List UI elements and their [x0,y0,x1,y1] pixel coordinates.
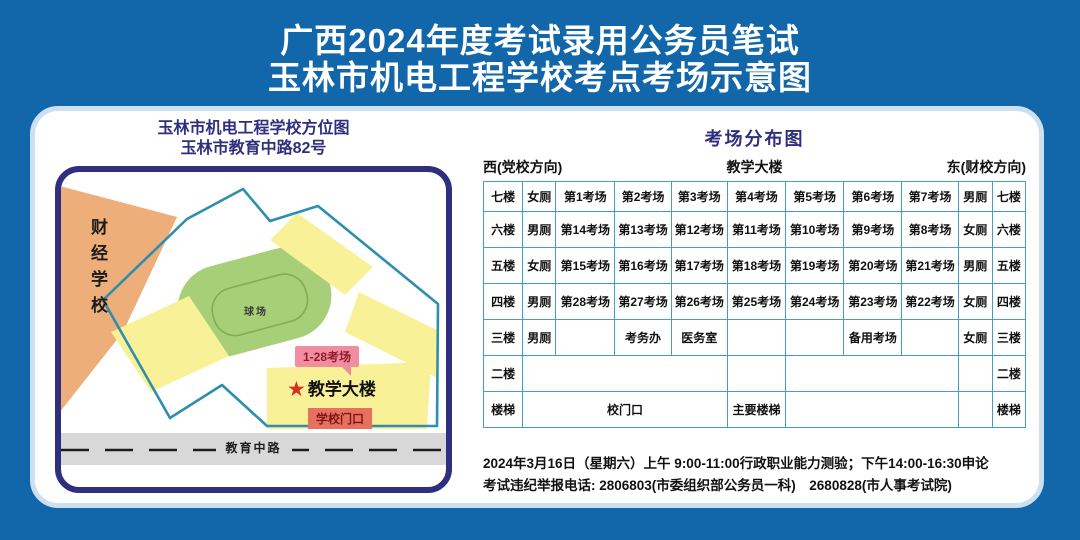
empty-cell [523,356,728,392]
room-cell: 五楼 [992,248,1025,284]
room-cell: 四楼 [992,284,1025,320]
room-cell: 女厕 [523,182,556,212]
room-cell: 男厕 [523,212,556,248]
room-cell: 第21考场 [902,248,958,284]
room-cell: 医务室 [671,320,727,356]
room-cell: 七楼 [992,182,1025,212]
room-cell: 楼梯 [484,392,523,428]
room-cell: 五楼 [484,248,523,284]
room-cell: 第5考场 [786,182,844,212]
teaching-building-text: 教学大楼 [308,380,376,399]
room-cell: 第6考场 [844,182,902,212]
room-cell: 备用考场 [844,320,902,356]
finance-school-label: 财经学校 [85,218,110,322]
content-panel: 玉林市机电工程学校方位图 玉林市教育中路82号 财经学校 球场 1-28考场 [30,106,1044,508]
venue-table: 七楼女厕第1考场第2考场第3考场第4考场第5考场第6考场第7考场男厕七楼六楼男厕… [483,181,1026,428]
map-heading: 玉林市机电工程学校方位图 玉林市教育中路82号 [55,119,452,159]
room-cell: 第11考场 [727,212,785,248]
room-cell: 第1考场 [556,182,615,212]
room-cell: 校门口 [523,392,728,428]
room-cell: 第2考场 [615,182,671,212]
table-row: 四楼男厕第28考场第27考场第26考场第25考场第24考场第23考场第22考场女… [484,284,1026,320]
room-cell: 男厕 [523,320,556,356]
room-cell: 第14考场 [556,212,615,248]
star-icon: ★ [287,378,306,401]
room-cell: 第9考场 [844,212,902,248]
room-cell: 考务办 [615,320,671,356]
empty-cell [556,320,615,356]
room-cell: 女厕 [958,212,992,248]
room-cell: 第20考场 [844,248,902,284]
room-cell: 第18考场 [727,248,785,284]
table-row: 三楼男厕考务办医务室备用考场女厕三楼 [484,320,1026,356]
direction-center: 教学大楼 [727,157,783,177]
room-cell: 七楼 [484,182,523,212]
room-cell: 第15考场 [556,248,615,284]
room-cell: 男厕 [958,248,992,284]
table-row: 七楼女厕第1考场第2考场第3考场第4考场第5考场第6考场第7考场男厕七楼 [484,182,1026,212]
empty-cell [902,320,958,356]
main-title-line2: 玉林市机电工程学校考点考场示意图 [0,59,1080,96]
empty-cell [786,392,959,428]
room-cell: 男厕 [523,284,556,320]
table-row: 五楼女厕第15考场第16考场第17考场第18考场第19考场第20考场第21考场男… [484,248,1026,284]
room-cell: 二楼 [992,356,1025,392]
room-cell: 第3考场 [671,182,727,212]
room-cell: 第7考场 [902,182,958,212]
empty-cell [958,356,992,392]
room-cell: 第23考场 [844,284,902,320]
room-cell: 六楼 [484,212,523,248]
room-cell: 第27考场 [615,284,671,320]
room-cell: 二楼 [484,356,523,392]
room-cell: 三楼 [992,320,1025,356]
room-cell: 第16考场 [615,248,671,284]
room-cell: 第25考场 [727,284,785,320]
distribution-title: 考场分布图 [483,125,1026,151]
direction-west: 西(党校方向) [483,157,562,177]
main-title-line1: 广西2024年度考试录用公务员笔试 [0,22,1080,59]
schedule-text: 2024年3月16日（星期六）上午 9:00-11:00行政职业能力测验；下午1… [483,452,989,472]
room-cell: 第13考场 [615,212,671,248]
map-title-line2: 玉林市教育中路82号 [55,139,452,159]
main-title: 广西2024年度考试录用公务员笔试 玉林市机电工程学校考点考场示意图 [0,22,1080,96]
room-cell: 第4考场 [727,182,785,212]
room-cell: 第17考场 [671,248,727,284]
empty-cell [727,320,785,356]
room-cell: 第26考场 [671,284,727,320]
school-gate-label: 学校门口 [308,408,372,429]
empty-cell [786,356,959,392]
room-cell: 男厕 [958,182,992,212]
report-phone-text: 考试违纪举报电话: 2806803(市委组织部公务员一科) 2680828(市人… [483,474,952,494]
room-cell: 第28考场 [556,284,615,320]
table-row: 六楼男厕第14考场第13考场第12考场第11考场第10考场第9考场第8考场女厕六… [484,212,1026,248]
campus-map: 财经学校 球场 1-28考场 ★教学大楼 学校门口 教育中路 [55,166,452,493]
room-cell: 三楼 [484,320,523,356]
table-row: 二楼二楼 [484,356,1026,392]
room-cell: 第22考场 [902,284,958,320]
room-cell: 女厕 [523,248,556,284]
venue-table-body: 七楼女厕第1考场第2考场第3考场第4考场第5考场第6考场第7考场男厕七楼六楼男厕… [484,182,1026,428]
room-cell: 第24考场 [786,284,844,320]
empty-cell [958,392,992,428]
room-cell: 女厕 [958,320,992,356]
road-name-label: 教育中路 [215,439,291,456]
room-cell: 六楼 [992,212,1025,248]
teaching-building-label: ★教学大楼 [287,375,376,402]
room-cell: 第8考场 [902,212,958,248]
room-cell: 楼梯 [992,392,1025,428]
room-cell: 主要楼梯 [727,392,785,428]
map-title-line1: 玉林市机电工程学校方位图 [55,119,452,139]
room-cell: 第10考场 [786,212,844,248]
rooms-range-bubble: 1-28考场 [295,346,359,367]
room-cell: 第12考场 [671,212,727,248]
room-cell: 四楼 [484,284,523,320]
direction-east: 东(财校方向) [947,157,1026,177]
direction-row: 西(党校方向) 教学大楼 东(财校方向) [483,157,1026,177]
sports-field-label: 球场 [221,303,291,318]
room-cell: 第19考场 [786,248,844,284]
empty-cell [786,320,844,356]
table-row: 楼梯校门口主要楼梯楼梯 [484,392,1026,428]
room-cell: 女厕 [958,284,992,320]
empty-cell [727,356,785,392]
